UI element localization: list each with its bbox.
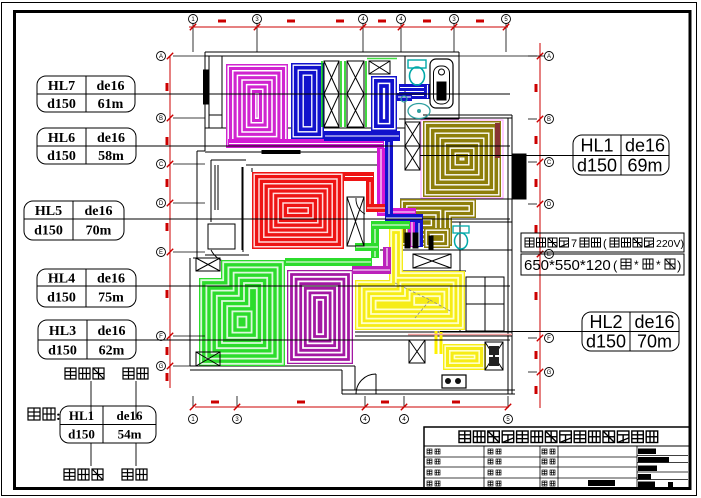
svg-text:75m: 75m [98,291,124,306]
svg-text:58m: 58m [98,149,124,164]
svg-text:HL7: HL7 [48,79,75,94]
svg-text:de16: de16 [97,272,125,287]
svg-text:de16: de16 [97,79,125,94]
svg-text:*: * [634,258,639,272]
svg-text:d150: d150 [47,291,76,306]
svg-text:54m: 54m [118,426,142,441]
svg-text:D: D [547,202,552,208]
svg-text:d150: d150 [68,426,95,441]
svg-text:de16: de16 [97,131,125,146]
svg-text:69m: 69m [627,156,662,176]
svg-text:70m: 70m [637,332,672,352]
svg-text:*: * [656,258,661,272]
svg-text:de16: de16 [85,204,113,219]
svg-text:62m: 62m [99,344,125,359]
svg-text:F: F [159,334,163,340]
svg-text:HL3: HL3 [49,324,76,339]
svg-text:HL4: HL4 [48,272,75,287]
svg-text:HL1: HL1 [69,408,94,423]
svg-text:(: ( [603,238,607,250]
svg-text:C: C [547,160,552,166]
svg-text:B: B [159,116,163,122]
svg-text:d150: d150 [48,344,77,359]
svg-text:d150: d150 [577,156,617,176]
svg-text:61m: 61m [98,97,124,112]
svg-text:de16: de16 [634,312,674,332]
svg-text:A: A [159,54,163,60]
svg-text:HL6: HL6 [48,131,75,146]
svg-text:HL2: HL2 [589,312,622,332]
svg-text:de16: de16 [117,408,144,423]
svg-text:C: C [159,162,164,168]
svg-text:220V): 220V) [656,238,684,250]
svg-text:HL1: HL1 [580,136,613,156]
svg-text:HL5: HL5 [35,204,62,219]
svg-text:70m: 70m [86,224,112,239]
svg-text:d150: d150 [47,97,76,112]
svg-text:7: 7 [571,238,577,250]
svg-text:D: D [159,201,164,207]
svg-text:F: F [547,336,551,342]
svg-text:G: G [547,370,552,376]
svg-text:A: A [547,54,551,60]
svg-text:E: E [159,250,163,256]
svg-text:B: B [547,117,551,123]
svg-text:(: ( [613,258,618,273]
svg-text:G: G [159,364,164,370]
svg-text:d150: d150 [34,224,63,239]
svg-text:): ) [677,258,681,273]
svg-text:d150: d150 [586,332,626,352]
svg-text:650*550*120: 650*550*120 [524,257,611,274]
svg-text:de16: de16 [625,136,665,156]
svg-text:de16: de16 [98,324,126,339]
svg-text:d150: d150 [47,149,76,164]
